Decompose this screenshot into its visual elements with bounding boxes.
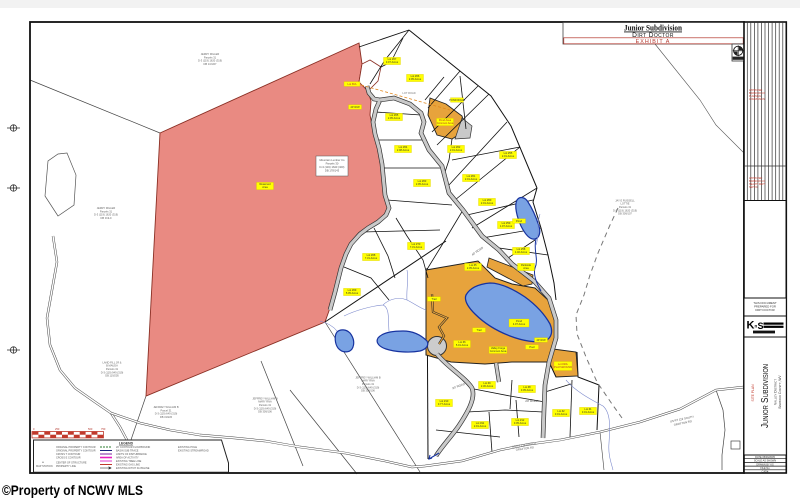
svg-text:Junior Subdivision: Junior Subdivision	[760, 364, 771, 428]
svg-text:D-3 (119) 1643 (320): D-3 (119) 1643 (320)	[320, 165, 345, 169]
svg-text:7.31 Acres: 7.31 Acres	[365, 256, 378, 260]
svg-text:SCALE AS SHOWN: SCALE AS SHOWN	[754, 460, 777, 463]
svg-text:5.01 Acres: 5.01 Acres	[456, 343, 469, 347]
svg-text:EXHIBIT A: EXHIBIT A	[636, 39, 671, 45]
svg-text:EXISTING STREAM/ROAD: EXISTING STREAM/ROAD	[178, 450, 209, 453]
svg-text:Pond: Pond	[516, 219, 523, 223]
svg-text:5.05 Acres: 5.05 Acres	[346, 291, 359, 295]
svg-text:DRAWN BY KS: DRAWN BY KS	[756, 463, 774, 466]
svg-text:+: +	[42, 461, 44, 465]
svg-text:POND ROAD: POND ROAD	[449, 98, 465, 102]
svg-text:COMMISSION: COMMISSION	[749, 98, 765, 101]
svg-text:DIRT DOCTOR: DIRT DOCTOR	[755, 308, 774, 312]
svg-text:2.01 Acres: 2.01 Acres	[450, 148, 463, 152]
svg-text:DB 309/106: DB 309/106	[258, 410, 272, 414]
svg-text:3.05 Acres: 3.05 Acres	[514, 421, 527, 425]
svg-text:Mountain Lumber Co: Mountain Lumber Co	[319, 158, 345, 162]
svg-text:40' R/W: 40' R/W	[536, 338, 546, 342]
svg-text:LEGEND: LEGEND	[119, 442, 134, 446]
svg-text:750: 750	[101, 427, 106, 431]
svg-text:EXISTING DITCH FLOWLINE: EXISTING DITCH FLOWLINE	[116, 467, 150, 470]
svg-text:1.40 Acres: 1.40 Acres	[515, 250, 528, 254]
svg-text:LOT ROAD: LOT ROAD	[402, 91, 415, 95]
svg-text:2.01 Acres: 2.01 Acres	[502, 154, 515, 158]
svg-text:2.01 Acres: 2.01 Acres	[465, 177, 478, 181]
svg-text:Trail: Trail	[432, 297, 437, 301]
svg-text:DB 1/31/07: DB 1/31/07	[204, 62, 218, 66]
svg-text:Common Area: Common Area	[490, 349, 507, 353]
svg-text:S: S	[758, 321, 764, 331]
svg-text:SEPTIC: SEPTIC	[749, 186, 758, 189]
svg-text:SITE PLAN: SITE PLAN	[750, 384, 755, 401]
svg-text:3.01 Acres: 3.01 Acres	[555, 412, 568, 416]
svg-text:CAD#: CAD#	[762, 471, 769, 474]
svg-text:Trail: Trail	[477, 328, 482, 332]
svg-text:500: 500	[88, 427, 93, 431]
svg-text:3.01 Acres: 3.01 Acres	[582, 410, 595, 414]
svg-text:3.77 Acres: 3.77 Acres	[438, 402, 451, 406]
svg-text:DB 309/106: DB 309/106	[361, 389, 375, 393]
svg-text:2.95 Acres: 2.95 Acres	[388, 116, 401, 120]
svg-text:20' ROAD: 20' ROAD	[525, 399, 539, 403]
svg-text:2.91 Acres: 2.91 Acres	[474, 424, 487, 428]
svg-text:Pool: Pool	[529, 345, 535, 349]
svg-text:250: 250	[55, 427, 60, 431]
svg-text:2.05 Acres: 2.05 Acres	[467, 266, 480, 270]
svg-text:2.95 Acres: 2.95 Acres	[416, 182, 429, 186]
svg-text:DB 319/26: DB 319/26	[160, 415, 173, 419]
svg-text:DB 309/107: DB 309/107	[618, 212, 632, 216]
svg-text:DATE 05/09/2005: DATE 05/09/2005	[755, 456, 775, 459]
svg-text:PLAYGROUND: PLAYGROUND	[554, 365, 572, 369]
svg-text:40' R/W: 40' R/W	[350, 105, 360, 109]
svg-text:Lot 66A: Lot 66A	[348, 82, 357, 86]
svg-text:2.01 Acres: 2.01 Acres	[481, 201, 494, 205]
svg-text:3.05 Acres: 3.05 Acres	[521, 388, 534, 392]
svg-text:Parcels 30: Parcels 30	[326, 162, 339, 166]
svg-text:2.30 Acres: 2.30 Acres	[481, 384, 494, 388]
svg-text:2.98 Acres: 2.98 Acres	[397, 148, 410, 152]
svg-text:Common Area: Common Area	[437, 121, 454, 125]
svg-text:DB 119/205: DB 119/205	[105, 374, 119, 378]
svg-text:Area: Area	[262, 185, 268, 189]
svg-text:MAP STATION: MAP STATION	[36, 465, 53, 468]
svg-text:3.07 Acres: 3.07 Acres	[386, 60, 399, 64]
svg-text:DB 178/143: DB 178/143	[325, 169, 340, 173]
svg-text:7.31 Acres: 7.31 Acres	[410, 245, 423, 249]
svg-text:1.97 Acres: 1.97 Acres	[500, 224, 513, 228]
svg-text:4.97 Acres: 4.97 Acres	[513, 322, 526, 326]
svg-text:2.95 Acres: 2.95 Acres	[409, 77, 422, 81]
svg-text:K: K	[747, 320, 755, 332]
svg-text:Valley District: Valley District	[774, 379, 778, 405]
svg-text:DB 319-9: DB 319-9	[101, 216, 113, 220]
svg-text:Junior Subdivision: Junior Subdivision	[624, 23, 682, 33]
svg-text:PROPERTY LINE: PROPERTY LINE	[56, 465, 76, 468]
svg-text:Area: Area	[523, 266, 529, 270]
svg-text:CROSS E CONTOUR: CROSS E CONTOUR	[56, 457, 81, 460]
svg-text:©Property of NCWV MLS: ©Property of NCWV MLS	[2, 483, 143, 498]
svg-text:Barbour County, WV: Barbour County, WV	[778, 375, 782, 409]
